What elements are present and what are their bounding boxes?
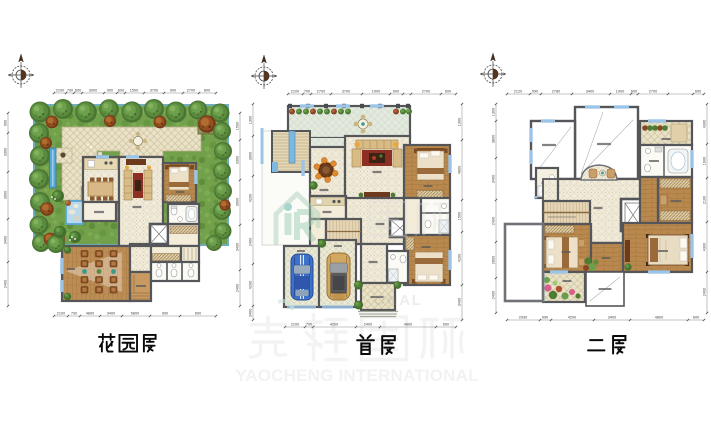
svg-text:2400: 2400: [236, 284, 240, 292]
svg-text:4200: 4200: [458, 254, 462, 262]
svg-text:1300: 1300: [458, 118, 462, 126]
svg-text:3400: 3400: [586, 90, 594, 94]
svg-text:1300: 1300: [249, 116, 253, 124]
svg-text:600: 600: [118, 89, 124, 93]
svg-text:3900: 3900: [89, 89, 97, 93]
svg-text:3900: 3900: [4, 191, 8, 199]
svg-text:700: 700: [67, 89, 73, 93]
svg-text:800: 800: [204, 89, 210, 93]
svg-text:4200: 4200: [568, 316, 576, 320]
svg-text:600: 600: [393, 90, 399, 94]
svg-text:2780: 2780: [552, 90, 560, 94]
svg-text:3900: 3900: [236, 198, 240, 206]
svg-text:2100: 2100: [703, 196, 707, 204]
svg-text:600: 600: [695, 90, 701, 94]
svg-text:600: 600: [75, 89, 81, 93]
svg-text:1300: 1300: [492, 108, 496, 116]
svg-text:3300: 3300: [236, 156, 240, 164]
svg-text:1500: 1500: [236, 122, 240, 130]
svg-text:900: 900: [162, 312, 168, 316]
svg-text:2400: 2400: [492, 291, 496, 299]
svg-text:2120: 2120: [514, 90, 522, 94]
svg-text:3700: 3700: [150, 89, 158, 93]
svg-text:2100: 2100: [56, 89, 64, 93]
svg-text:600: 600: [631, 90, 637, 94]
svg-text:5800: 5800: [131, 312, 139, 316]
svg-text:2400: 2400: [249, 238, 253, 246]
svg-text:3400: 3400: [249, 309, 253, 317]
svg-text:900: 900: [4, 120, 8, 126]
svg-text:700: 700: [71, 312, 77, 316]
svg-text:3700: 3700: [342, 90, 350, 94]
svg-text:2700: 2700: [187, 89, 195, 93]
svg-text:2400: 2400: [703, 288, 707, 296]
svg-text:2800: 2800: [492, 256, 496, 264]
svg-text:2100: 2100: [291, 323, 299, 327]
svg-text:4200: 4200: [249, 194, 253, 202]
svg-text:3400: 3400: [608, 316, 616, 320]
svg-text:3900: 3900: [249, 152, 253, 160]
svg-text:3400: 3400: [4, 236, 8, 244]
svg-text:2400: 2400: [4, 280, 8, 288]
svg-text:1900: 1900: [616, 90, 624, 94]
svg-text:2100: 2100: [57, 312, 65, 316]
svg-text:900: 900: [170, 89, 176, 93]
svg-text:1500: 1500: [130, 89, 138, 93]
svg-text:600: 600: [445, 90, 451, 94]
svg-text:600: 600: [195, 312, 201, 316]
svg-text:1900: 1900: [372, 90, 380, 94]
svg-text:3400: 3400: [492, 175, 496, 183]
svg-text:4200: 4200: [249, 281, 253, 289]
svg-text:2930: 2930: [519, 316, 527, 320]
svg-text:3400: 3400: [458, 298, 462, 306]
svg-text:2400: 2400: [364, 323, 372, 327]
svg-text:2400: 2400: [492, 217, 496, 225]
svg-text:700: 700: [304, 90, 310, 94]
svg-text:4300: 4300: [703, 243, 707, 251]
svg-text:2100: 2100: [291, 90, 299, 94]
svg-text:990: 990: [542, 316, 548, 320]
svg-text:600: 600: [693, 316, 699, 320]
svg-text:900: 900: [107, 89, 113, 93]
svg-text:3800: 3800: [492, 135, 496, 143]
svg-text:1500: 1500: [458, 212, 462, 220]
svg-text:4800: 4800: [458, 166, 462, 174]
svg-text:3400: 3400: [107, 312, 115, 316]
svg-text:4800: 4800: [86, 312, 94, 316]
svg-text:2700: 2700: [649, 90, 657, 94]
svg-text:1000: 1000: [703, 157, 707, 165]
svg-text:990: 990: [532, 90, 538, 94]
svg-text:3300: 3300: [4, 148, 8, 156]
svg-text:4300: 4300: [703, 120, 707, 128]
svg-text:4800: 4800: [655, 316, 663, 320]
svg-text:600: 600: [443, 323, 449, 327]
svg-text:2700: 2700: [422, 90, 430, 94]
svg-text:2700: 2700: [317, 90, 325, 94]
svg-text:YAOCHENG INTERNATIONAL: YAOCHENG INTERNATIONAL: [235, 366, 478, 385]
svg-text:ONAL: ONAL: [374, 292, 423, 309]
svg-text:3400: 3400: [236, 243, 240, 251]
